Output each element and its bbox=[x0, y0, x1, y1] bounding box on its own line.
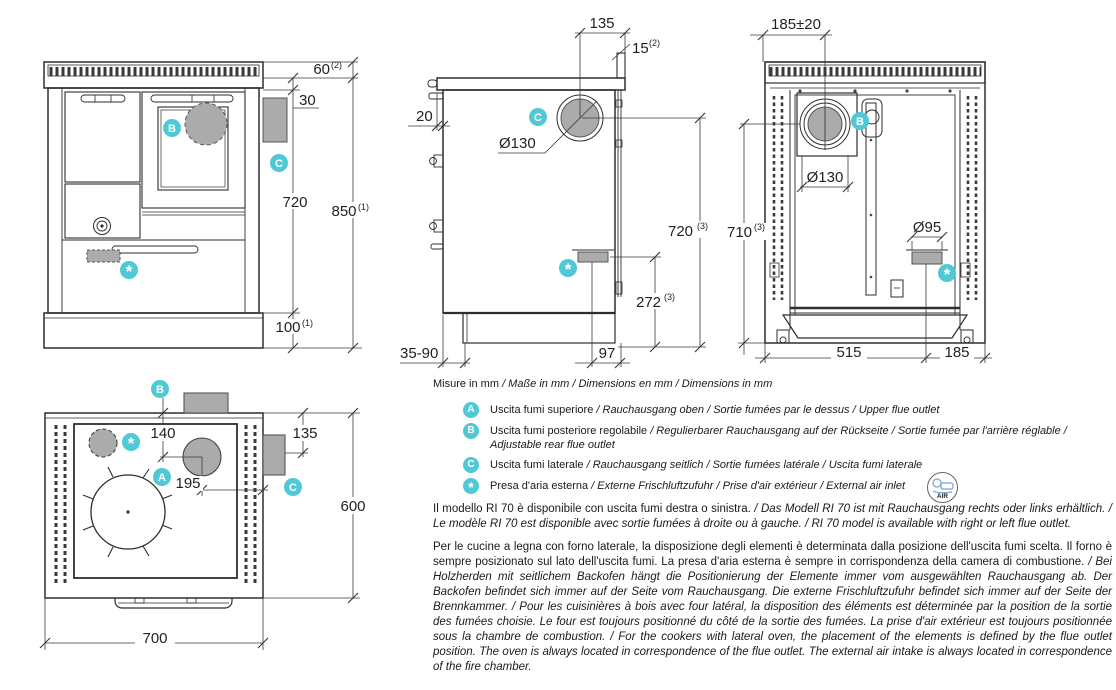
svg-text:*: * bbox=[944, 265, 951, 284]
rear-dim-flue-diameter: Ø130 bbox=[807, 169, 844, 186]
rear-air-inlet bbox=[912, 252, 942, 264]
front-dim-plinth-height: 100 bbox=[275, 319, 300, 336]
legend-item-c-text: Uscita fumi laterale / Rauchausgang seit… bbox=[490, 459, 922, 473]
legend-badge-a-icon: A bbox=[463, 402, 479, 418]
rear-dim-flue-height: 710 bbox=[727, 224, 752, 241]
top-dim-a-to-side: 195 bbox=[175, 475, 200, 492]
side-badge-c: C bbox=[529, 108, 547, 126]
front-dim-total-height-note: (1) bbox=[358, 202, 369, 212]
technical-drawing-page: 60 (2) 30 720 850 (1) 100 (1) B C * bbox=[0, 0, 1116, 690]
rear-dim-edge-x: 185 bbox=[944, 344, 969, 361]
svg-text:*: * bbox=[128, 434, 135, 453]
rear-badge-air: * bbox=[938, 264, 956, 284]
text-column: Misure in mm / Maße in mm / Dimensions e… bbox=[433, 378, 1112, 675]
front-dim-outlet-offset: 30 bbox=[299, 92, 316, 109]
top-dim-depth: 600 bbox=[340, 498, 365, 515]
front-dim-body-height: 720 bbox=[282, 194, 307, 211]
svg-text:*: * bbox=[126, 262, 133, 281]
top-badge-b: B bbox=[151, 380, 169, 398]
side-dim-flue-to-back: 135 bbox=[589, 15, 614, 32]
legend-badge-c-icon: C bbox=[463, 457, 479, 473]
legend-item-rear-flue-outlet: B Uscita fumi posteriore regolabile / Re… bbox=[463, 425, 1112, 452]
svg-text:C: C bbox=[289, 482, 297, 494]
legend-item-a-text: Uscita fumi superiore / Rauchausgang obe… bbox=[490, 404, 939, 418]
side-dim-inlet-height-note: (3) bbox=[664, 292, 675, 302]
front-badge-b: B bbox=[163, 119, 181, 137]
placement-note-secondary: / Bei Holzherden mit seitlichem Backofen… bbox=[433, 556, 1112, 673]
top-air-inlet-ghost bbox=[89, 429, 117, 457]
front-dim-plinth-height-note: (1) bbox=[302, 318, 313, 328]
rear-view: 185±20 Ø130 Ø95 710 (3) 515 185 B * bbox=[726, 16, 992, 363]
side-air-inlet bbox=[578, 252, 608, 262]
rear-dim-flue-height-note: (3) bbox=[754, 222, 765, 232]
model-availability-note: Il modello RI 70 è disponibile con uscit… bbox=[433, 502, 1112, 532]
svg-text:B: B bbox=[856, 116, 864, 128]
side-dim-flue-height-note: (3) bbox=[697, 221, 708, 231]
top-dim-a-depth: 140 bbox=[150, 425, 175, 442]
side-view: 135 15 (2) 20 Ø130 720 (3) 272 (3) 35-90… bbox=[400, 15, 708, 368]
placement-note-primary: Per le cucine a legna con forno laterale… bbox=[433, 541, 1112, 568]
front-dim-total-height: 850 bbox=[331, 203, 356, 220]
svg-text:C: C bbox=[275, 158, 283, 170]
side-dim-flue-height: 720 bbox=[668, 223, 693, 240]
svg-text:B: B bbox=[168, 123, 176, 135]
placement-note: Per le cucine a legna con forno laterale… bbox=[433, 540, 1112, 675]
legend-badge-b-icon: B bbox=[463, 423, 479, 439]
front-view: 60 (2) 30 720 850 (1) 100 (1) B C * bbox=[44, 57, 369, 353]
top-dim-width: 700 bbox=[142, 630, 167, 647]
rear-dim-flue-offset: 185±20 bbox=[771, 16, 821, 33]
side-dim-inlet-to-back: 97 bbox=[599, 345, 616, 362]
legend-item-lateral-flue-outlet: C Uscita fumi laterale / Rauchausgang se… bbox=[463, 459, 1112, 473]
svg-text:AIR: AIR bbox=[937, 493, 949, 500]
legend-item-b-text: Uscita fumi posteriore regolabile / Regu… bbox=[490, 425, 1112, 452]
legend: A Uscita fumi superiore / Rauchausgang o… bbox=[463, 404, 1112, 494]
rear-flue-outlet-ghost bbox=[185, 103, 227, 145]
side-dim-splash-thickness: 15 bbox=[632, 40, 649, 57]
front-dim-rail-height-note: (2) bbox=[331, 60, 342, 70]
front-badge-air: * bbox=[120, 261, 138, 281]
external-air-badge-icon: AIR bbox=[926, 471, 959, 504]
side-badge-air: * bbox=[559, 259, 577, 279]
svg-text:A: A bbox=[158, 472, 166, 484]
units-note-primary: Misure in mm bbox=[433, 378, 499, 390]
svg-text:C: C bbox=[534, 112, 542, 124]
legend-badge-air-icon: * bbox=[463, 478, 479, 494]
top-view: 140 195 135 600 700 B * A C bbox=[40, 380, 372, 650]
side-dim-flue-diameter: Ø130 bbox=[499, 135, 536, 152]
legend-item-external-air-inlet: * Presa d'aria esterna / Externe Frischl… bbox=[463, 480, 1112, 494]
model-note-primary: Il modello RI 70 è disponibile con uscit… bbox=[433, 503, 751, 515]
legend-item-air-text: Presa d'aria esterna / Externe Frischluf… bbox=[490, 480, 905, 494]
front-badge-c: C bbox=[270, 154, 288, 172]
side-dim-inlet-height: 272 bbox=[636, 294, 661, 311]
side-dim-overhang: 20 bbox=[416, 108, 433, 125]
top-badge-c: C bbox=[284, 478, 302, 496]
top-side-outlet bbox=[263, 435, 285, 475]
side-flue-outlet bbox=[263, 98, 287, 142]
air-inlet-ghost bbox=[87, 250, 120, 262]
top-badge-air: * bbox=[122, 433, 140, 453]
rear-dim-inlet-x: 515 bbox=[836, 344, 861, 361]
legend-item-upper-flue-outlet: A Uscita fumi superiore / Rauchausgang o… bbox=[463, 404, 1112, 418]
rear-badge-b: B bbox=[851, 112, 869, 130]
side-dim-splash-thickness-note: (2) bbox=[649, 38, 660, 48]
units-note: Misure in mm / Maße in mm / Dimensions e… bbox=[433, 378, 1112, 391]
rear-dim-inlet-diameter: Ø95 bbox=[913, 219, 941, 236]
svg-text:B: B bbox=[156, 384, 164, 396]
top-badge-a: A bbox=[153, 468, 171, 486]
svg-text:*: * bbox=[565, 260, 572, 279]
front-dim-rail-height: 60 bbox=[313, 61, 330, 78]
top-rear-outlet bbox=[184, 393, 228, 413]
side-dim-plinth-range: 35-90 bbox=[400, 345, 438, 362]
units-note-secondary: / Maße in mm / Dimensions en mm / Dimens… bbox=[499, 378, 772, 390]
top-dim-c-depth: 135 bbox=[292, 425, 317, 442]
